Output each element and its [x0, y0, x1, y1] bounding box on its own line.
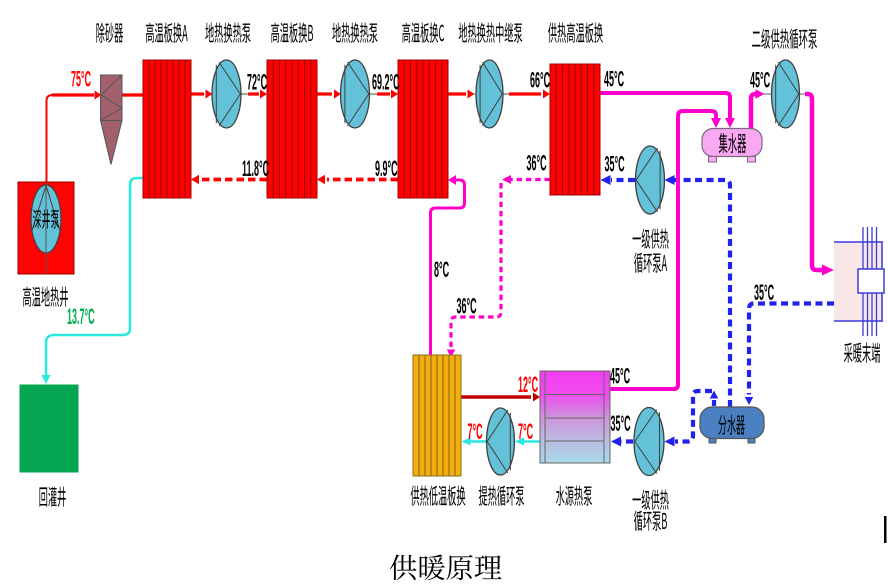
svg-text:35°C: 35°C — [605, 150, 625, 176]
svg-text:75°C: 75°C — [71, 65, 91, 91]
svg-text:35°C: 35°C — [754, 279, 774, 305]
svg-text:12°C: 12°C — [518, 371, 538, 397]
svg-text:69.2°C: 69.2°C — [372, 68, 400, 94]
svg-text:7°C: 7°C — [468, 418, 483, 444]
svg-text:36°C: 36°C — [457, 292, 477, 318]
svg-text:66°C: 66°C — [530, 66, 550, 92]
svg-text:45°C: 45°C — [750, 66, 770, 92]
svg-text:45°C: 45°C — [610, 362, 630, 388]
svg-text:45°C: 45°C — [604, 65, 624, 91]
svg-text:9.9°C: 9.9°C — [375, 155, 398, 181]
svg-text:7°C: 7°C — [518, 418, 533, 444]
svg-text:11.8°C: 11.8°C — [242, 155, 269, 181]
svg-text:36°C: 36°C — [527, 149, 547, 175]
svg-text:13.7°C: 13.7°C — [67, 303, 95, 329]
svg-text:72°C: 72°C — [247, 68, 267, 94]
svg-text:35°C: 35°C — [611, 410, 631, 436]
svg-text:8°C: 8°C — [434, 256, 449, 282]
